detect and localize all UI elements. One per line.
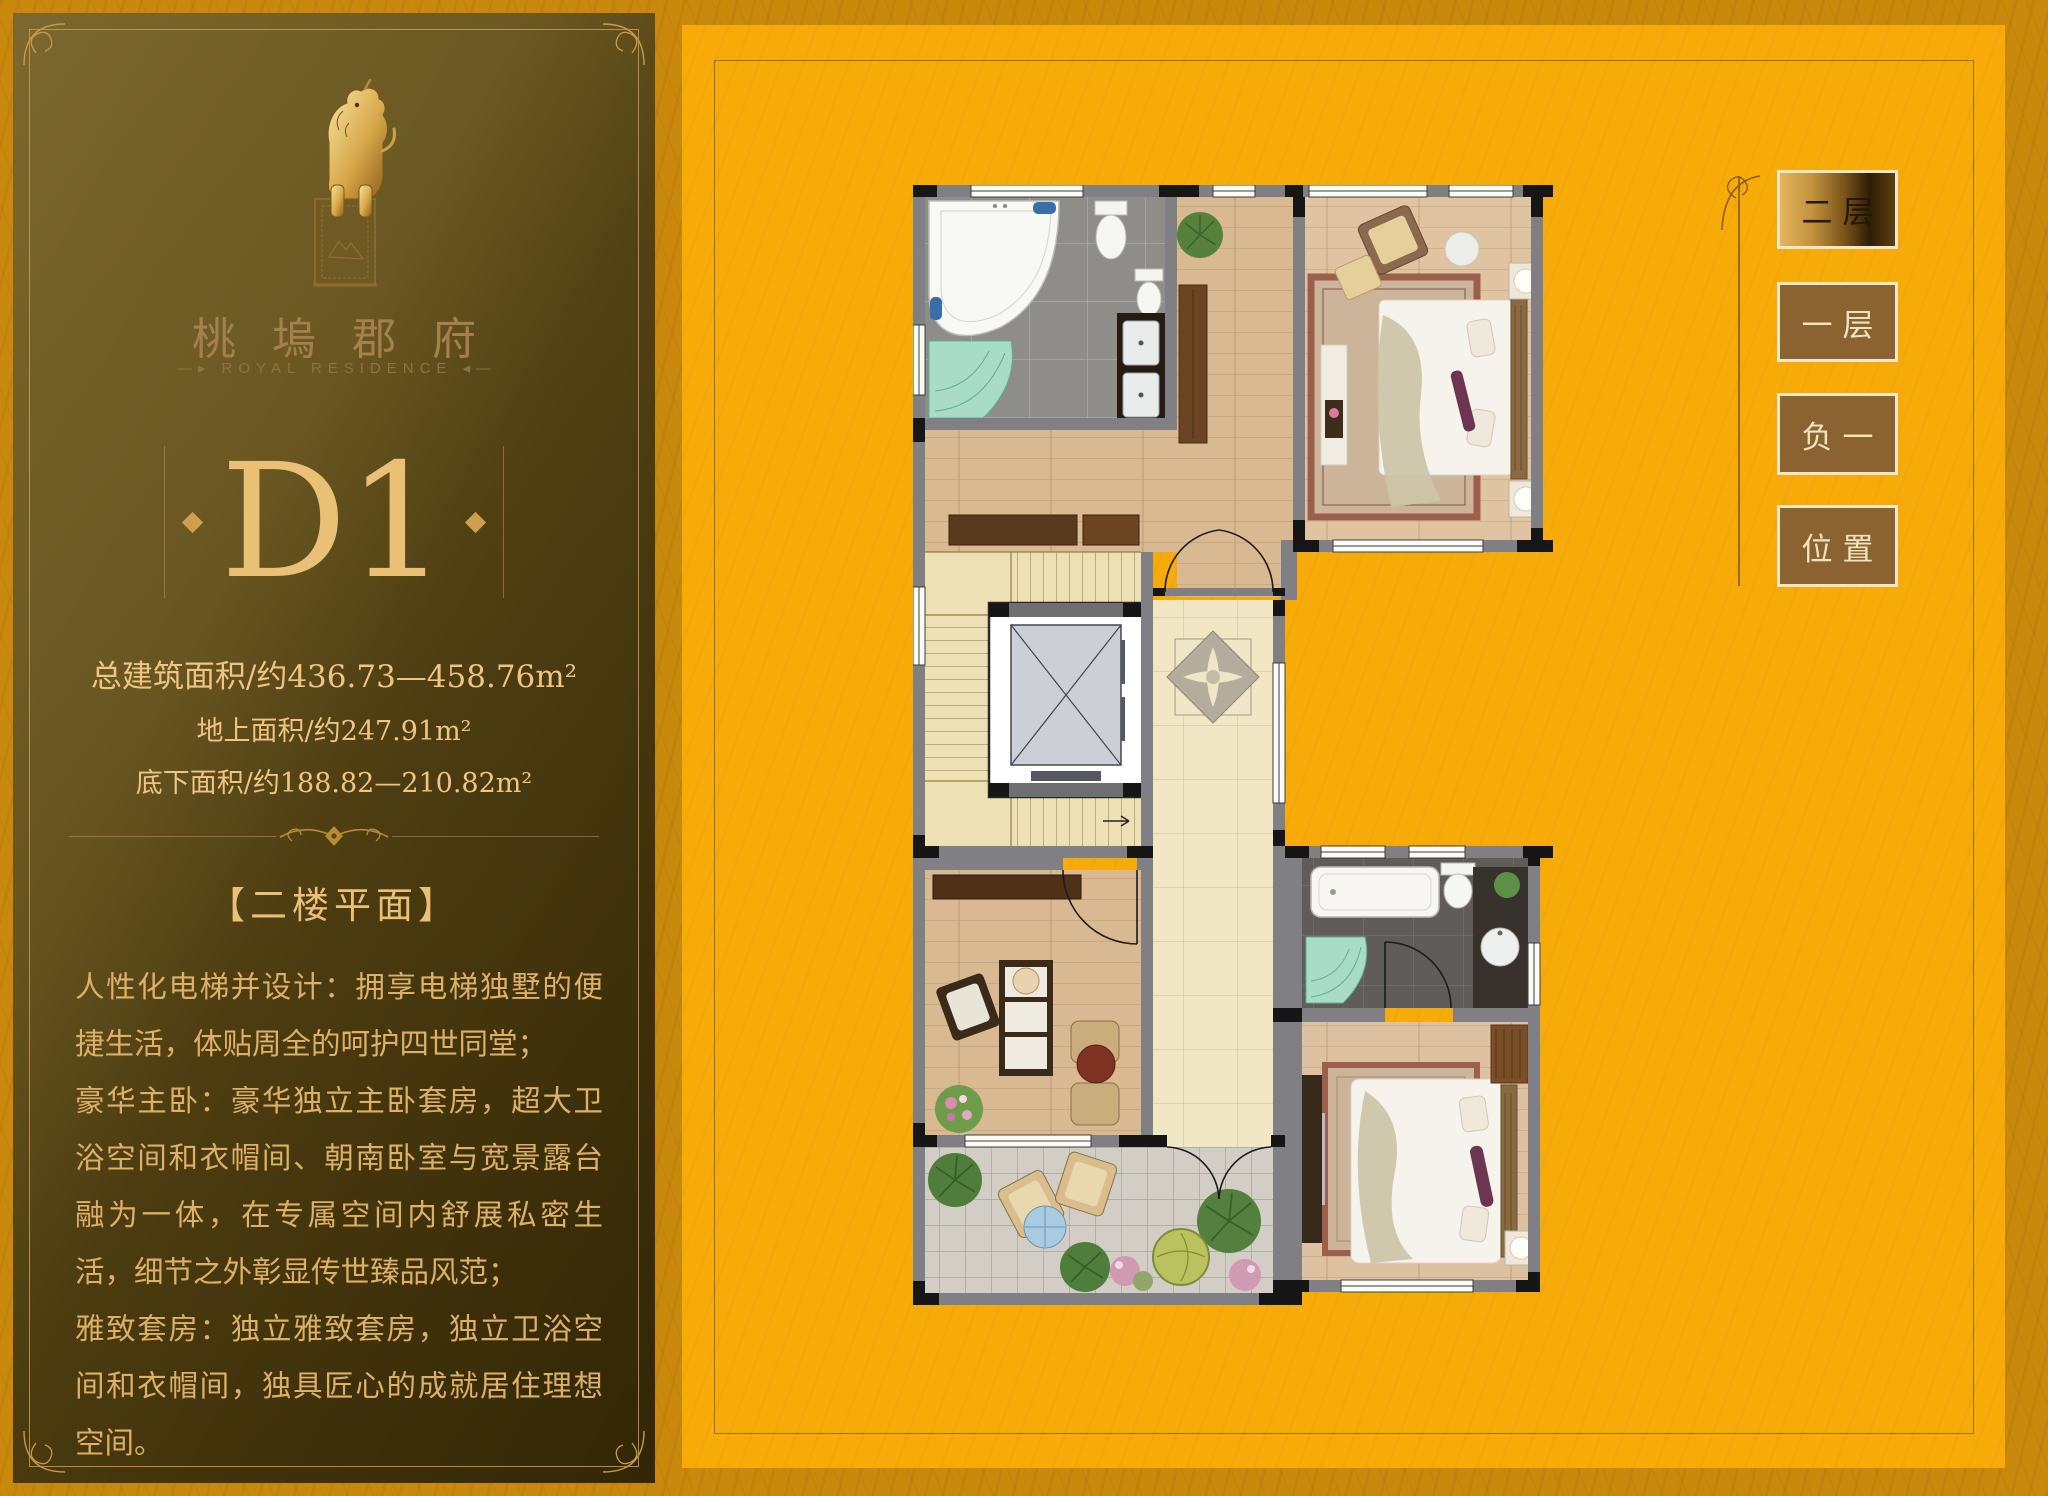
scroll-corner-icon (601, 1429, 647, 1475)
cloud-scroll-icon (1712, 172, 1764, 234)
master-bedroom (1305, 197, 1543, 540)
desc-paragraph: 豪华主卧：豪华独立主卧套房，超大卫浴空间和衣帽间、朝南卧室与宽景露台融为一体，在… (75, 1073, 603, 1301)
brand-name: 桃塢郡府 (13, 303, 655, 367)
marble-medallion (1167, 631, 1259, 723)
page: 桃塢郡府 —▸ ROYAL RESIDENCE ◂— D1 总建筑面积/约436… (0, 0, 2048, 1496)
wardrobe (1491, 1025, 1528, 1083)
potted-plant (1177, 212, 1223, 258)
desc-paragraph: 雅致套房：独立雅致套房，独立卫浴空间和衣帽间，独具匠心的成就居住理想空间。 (75, 1301, 603, 1472)
diamond-icon (182, 511, 203, 532)
unit-code: D1 (220, 443, 447, 601)
floor-tab-2f[interactable]: 二层 (1777, 170, 1898, 249)
bed (1351, 1079, 1517, 1263)
side-table (1445, 232, 1479, 266)
brand-tagline: —▸ ROYAL RESIDENCE ◂— (13, 359, 655, 377)
vanity (1473, 867, 1528, 1008)
scroll-corner-icon (21, 21, 67, 67)
scroll-corner-icon (601, 21, 647, 67)
low-cabinet (933, 875, 1081, 899)
patio-table (1024, 1206, 1066, 1248)
tall-cabinet (1179, 285, 1207, 443)
bathtub (1311, 867, 1439, 917)
floor-plan (913, 185, 1560, 1305)
bidet (1135, 269, 1163, 316)
floral-divider-icon (276, 821, 392, 851)
guest-bedroom (1302, 1022, 1537, 1280)
master-bathroom (925, 197, 1165, 421)
floor-tab-location[interactable]: 位置 (1777, 505, 1898, 587)
nav-divider-line (1738, 176, 1740, 586)
armchair (1071, 1083, 1119, 1125)
terrace (925, 1147, 1273, 1293)
info-panel: 桃塢郡府 —▸ ROYAL RESIDENCE ◂— D1 总建筑面积/约436… (13, 13, 655, 1483)
bed (1378, 297, 1527, 507)
corridor (1153, 600, 1273, 1147)
section-heading: 【二楼平面】 (13, 875, 655, 929)
desc-paragraph: 人性化电梯并设计：拥享电梯独墅的便捷生活，体贴周全的呵护四世同堂； (75, 959, 603, 1073)
qilin-statue-icon (285, 79, 405, 293)
floor-tab-1f[interactable]: 一层 (1777, 282, 1898, 362)
round-table (1077, 1045, 1115, 1083)
floor-tab-b1[interactable]: 负一 (1777, 393, 1898, 475)
elevator (989, 603, 1143, 797)
double-vanity (1117, 313, 1165, 421)
bench (1321, 345, 1347, 465)
description: 人性化电梯并设计：拥享电梯独墅的便捷生活，体贴周全的呵护四世同堂； 豪华主卧：豪… (75, 959, 603, 1472)
study-room (925, 870, 1141, 1135)
tv-cabinet (1302, 1075, 1325, 1243)
flourish-line (503, 446, 504, 598)
flourish-line (164, 446, 165, 598)
area-total: 总建筑面积/约436.73—458.76m² (13, 651, 655, 696)
section-divider (69, 821, 599, 851)
area-above-ground: 地上面积/约247.91m² (13, 709, 655, 748)
guest-bathroom (1302, 858, 1528, 1008)
toilet (1095, 201, 1127, 259)
diamond-icon (464, 511, 485, 532)
area-basement: 底下面积/约188.82—210.82m² (13, 761, 655, 800)
scroll-corner-icon (21, 1429, 67, 1475)
desk (999, 960, 1053, 1076)
flower-pot (935, 1085, 983, 1133)
unit-code-block: D1 (13, 443, 655, 601)
sideboard (949, 515, 1139, 545)
